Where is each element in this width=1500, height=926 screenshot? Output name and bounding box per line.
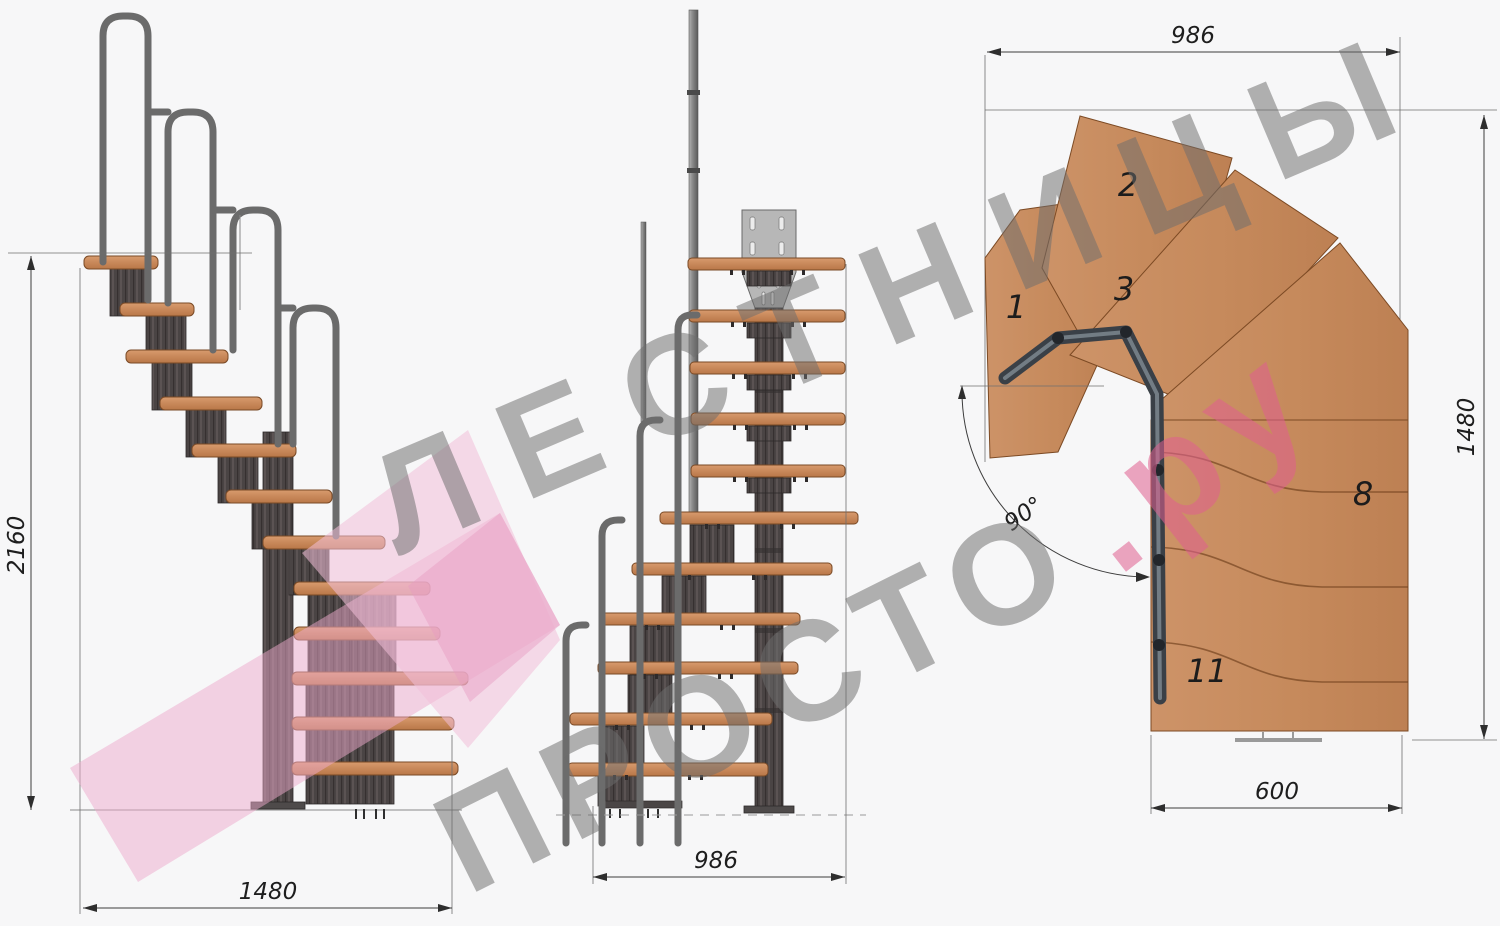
plan-height-label: 1480 bbox=[1454, 398, 1480, 457]
dimension-plan-top-986: 986 bbox=[987, 23, 1400, 56]
step-label-8: 8 bbox=[1353, 475, 1373, 513]
pole-joint bbox=[687, 90, 700, 95]
front-width-label: 986 bbox=[694, 848, 738, 874]
wall-bracket-symbol bbox=[1235, 732, 1322, 740]
baluster-pole-2 bbox=[641, 222, 646, 422]
drawing-canvas: 2160 1480 bbox=[0, 0, 1500, 926]
column-base-flange bbox=[251, 802, 305, 809]
top-plan-view: 1 2 3 8 11 986 1480 600 bbox=[958, 23, 1497, 814]
step-label-11: 11 bbox=[1187, 652, 1228, 690]
front-elevation-view: 986 bbox=[556, 10, 866, 884]
plan-angle-label: 90° bbox=[1000, 492, 1048, 537]
pole-joint bbox=[687, 168, 700, 173]
fan-treads-plan bbox=[985, 116, 1408, 458]
anchor-bolts-front bbox=[610, 809, 658, 818]
plan-flight-width-label: 600 bbox=[1255, 779, 1299, 805]
staircase-technical-drawing: 2160 1480 bbox=[0, 0, 1500, 926]
side-elevation-view: 2160 1480 bbox=[4, 16, 468, 914]
step-label-3: 3 bbox=[1114, 270, 1134, 308]
dimension-plan-bottom-600: 600 bbox=[1151, 735, 1402, 814]
side-height-label: 2160 bbox=[4, 516, 30, 575]
plan-top-width-label: 986 bbox=[1171, 23, 1215, 49]
support-column bbox=[263, 432, 293, 804]
step-label-1: 1 bbox=[1006, 288, 1026, 326]
side-width-label: 1480 bbox=[239, 879, 298, 905]
step-label-2: 2 bbox=[1118, 166, 1138, 204]
dimension-plan-right-1480: 1480 bbox=[1454, 115, 1488, 739]
wood-treads-front bbox=[568, 258, 858, 776]
column-base-flange bbox=[744, 806, 794, 813]
